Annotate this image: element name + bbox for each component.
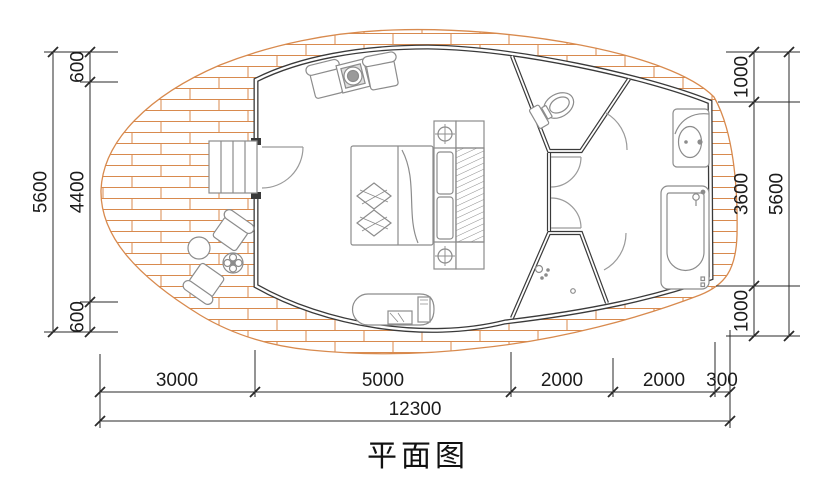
wardrobe <box>456 121 484 269</box>
washbasin <box>673 109 709 167</box>
tv-console <box>353 294 435 325</box>
bathtub <box>661 186 709 289</box>
dim-bottom-seg-5: 300 <box>706 370 738 391</box>
dim-bottom-seg-2: 5000 <box>362 370 404 391</box>
dim-left-seg-top: 600 <box>68 51 89 83</box>
floor-plan-canvas: 600 4400 600 5600 1000 3600 1000 5600 30… <box>0 0 837 496</box>
floor-plan-page: 600 4400 600 5600 1000 3600 1000 5600 30… <box>0 0 837 496</box>
drawing-title: 平面图 <box>367 440 469 473</box>
round-side-table <box>188 237 210 259</box>
dim-bottom-seg-4: 2000 <box>643 370 685 391</box>
dim-left-seg-bottom: 600 <box>68 301 89 333</box>
double-bed <box>351 146 433 245</box>
dim-right-overall: 5600 <box>767 173 788 215</box>
dim-bottom-seg-1: 3000 <box>156 370 198 391</box>
flower-table <box>223 253 243 273</box>
entry-stairs <box>209 141 257 193</box>
dim-bottom-seg-3: 2000 <box>541 370 583 391</box>
dim-right-seg-bottom: 1000 <box>732 290 753 332</box>
nightstand-column <box>434 121 456 269</box>
dim-left-overall: 5600 <box>31 171 52 213</box>
dim-bottom-overall: 12300 <box>389 399 442 420</box>
floor-drain <box>571 289 576 294</box>
dim-left-seg-mid: 4400 <box>68 171 89 213</box>
dim-right-seg-top: 1000 <box>732 56 753 98</box>
dim-right-seg-mid: 3600 <box>732 173 753 215</box>
